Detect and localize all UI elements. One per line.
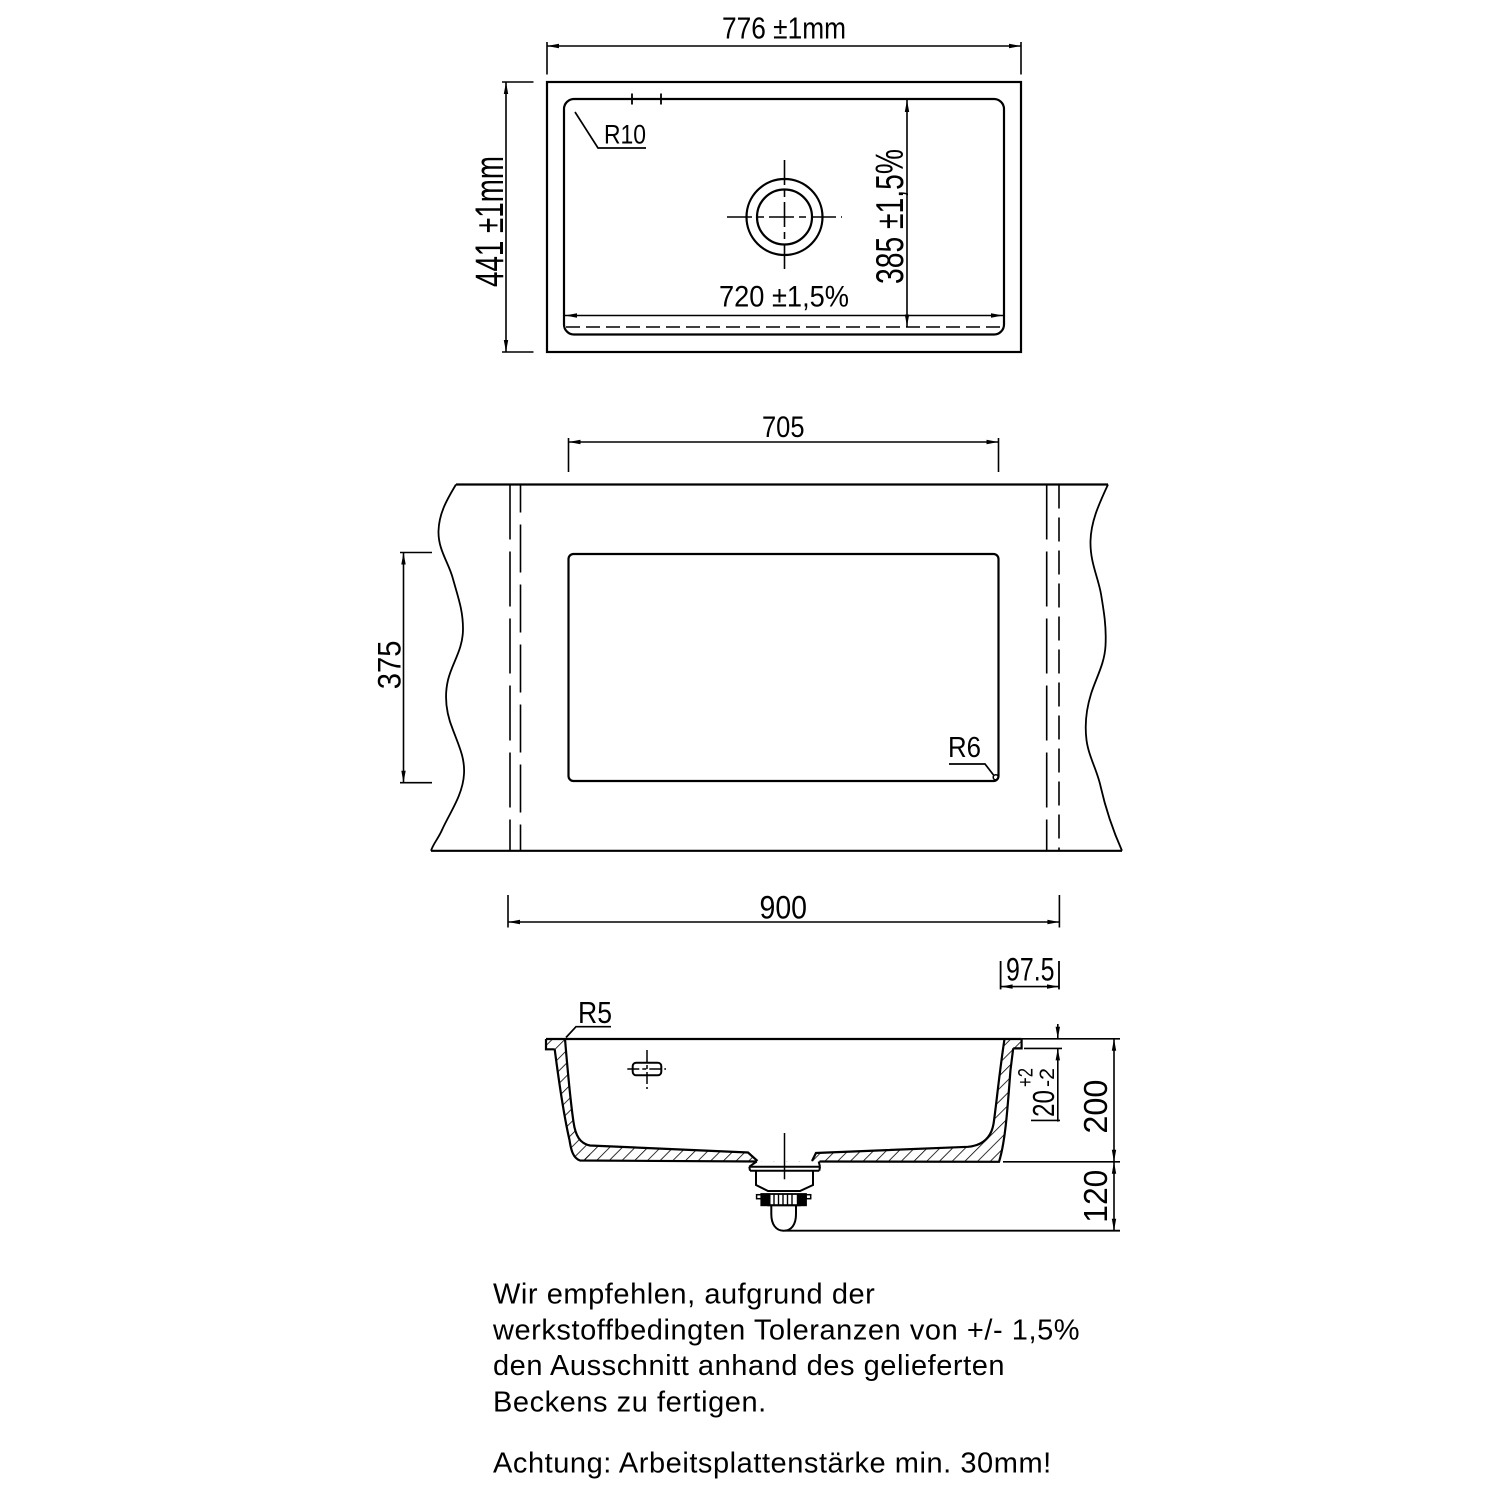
svg-text:Achtung: Arbeitsplattenstärke: Achtung: Arbeitsplattenstärke min. 30mm! bbox=[493, 1448, 1052, 1480]
svg-text:den Ausschnitt anhand des geli: den Ausschnitt anhand des gelieferten bbox=[493, 1350, 1005, 1382]
svg-text:720 ±1,5%: 720 ±1,5% bbox=[719, 281, 849, 314]
svg-text:200: 200 bbox=[1077, 1080, 1114, 1134]
svg-text:900: 900 bbox=[760, 890, 808, 926]
svg-text:R5: R5 bbox=[578, 995, 612, 1030]
svg-text:385 ±1,5%: 385 ±1,5% bbox=[869, 149, 912, 284]
svg-text:375: 375 bbox=[372, 641, 408, 690]
svg-text:120: 120 bbox=[1077, 1170, 1114, 1223]
svg-text:441 ±1mm: 441 ±1mm bbox=[468, 156, 512, 287]
svg-text:Wir empfehlen, aufgrund der: Wir empfehlen, aufgrund der bbox=[493, 1279, 875, 1311]
svg-text:20: 20 bbox=[1026, 1090, 1061, 1117]
svg-text:+2: +2 bbox=[1015, 1068, 1038, 1087]
svg-text:R10: R10 bbox=[604, 120, 646, 150]
svg-text:R6: R6 bbox=[948, 732, 981, 764]
svg-text:-2: -2 bbox=[1036, 1068, 1059, 1087]
svg-text:Beckens zu fertigen.: Beckens zu fertigen. bbox=[493, 1387, 767, 1419]
svg-text:705: 705 bbox=[762, 411, 805, 444]
svg-text:werkstoffbedingten Toleranzen: werkstoffbedingten Toleranzen von +/- 1,… bbox=[492, 1314, 1080, 1346]
svg-text:97.5: 97.5 bbox=[1006, 952, 1055, 988]
svg-text:776 ±1mm: 776 ±1mm bbox=[722, 11, 846, 46]
